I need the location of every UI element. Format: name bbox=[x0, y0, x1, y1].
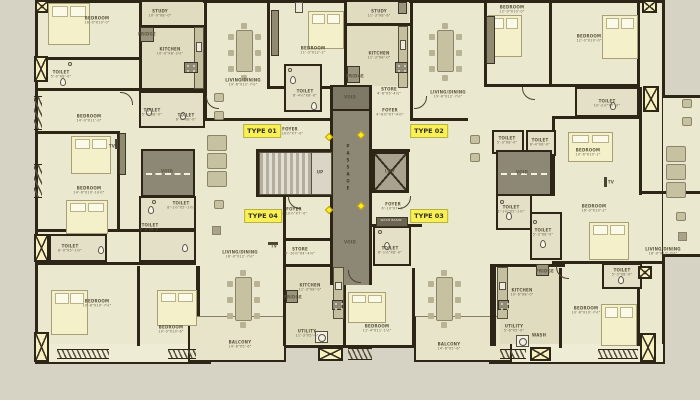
bed bbox=[308, 11, 344, 49]
toilet-fixture bbox=[148, 206, 154, 214]
wall bbox=[267, 0, 270, 89]
sofa bbox=[666, 182, 686, 198]
wash-basin bbox=[68, 62, 72, 66]
room-label: FOYER4'-6½"X7'-4½" bbox=[376, 107, 404, 116]
room-label: TOILET6'-1½"X8'-0" bbox=[378, 245, 402, 254]
duct-shaft bbox=[34, 56, 48, 82]
toilet-fixture bbox=[98, 246, 104, 254]
passage-corridor bbox=[330, 85, 372, 285]
room-label: KITCHEN10'-6"X8'-0" bbox=[511, 287, 534, 296]
duct-shaft bbox=[643, 86, 659, 112]
room-label: VOID bbox=[161, 169, 173, 174]
stove bbox=[498, 300, 509, 310]
toilet-fixture bbox=[311, 102, 317, 110]
side-table bbox=[212, 226, 221, 235]
toilet-fixture bbox=[540, 240, 546, 248]
room-label: STUDY11'-3"X8'-6" bbox=[368, 8, 391, 17]
room-label: VOID bbox=[344, 95, 356, 100]
balcony-right bbox=[414, 316, 512, 362]
stove bbox=[395, 62, 408, 73]
room-label: LIFT bbox=[385, 169, 395, 174]
bed bbox=[602, 15, 638, 59]
wall bbox=[139, 0, 142, 91]
room-label: KITCHEN11'-3"X8'-0" bbox=[299, 282, 322, 291]
toilet-fixture bbox=[618, 276, 624, 284]
wardrobe bbox=[486, 16, 495, 64]
room-label: TV bbox=[271, 244, 277, 249]
room-label: TOILET5'-3"X8'-0" bbox=[612, 267, 633, 276]
staircase bbox=[259, 152, 313, 195]
stove bbox=[184, 62, 198, 73]
wall bbox=[412, 268, 415, 348]
room-label: BEDROOM16'-0"X10'-2" bbox=[581, 203, 606, 212]
duct-shaft bbox=[530, 347, 551, 361]
room-label: VOID bbox=[344, 240, 356, 245]
room-label: TOILET5'-3"X8'-0" bbox=[140, 222, 161, 231]
room-label: BEDROOM16'-0"X10'-0" bbox=[84, 15, 109, 24]
room-label: TOILET5'-0"X8'-0" bbox=[51, 69, 72, 78]
room-label: TOILET6'-4½"X8'-0" bbox=[293, 88, 317, 97]
room-label: FOYER6'-10"X7'-0" bbox=[382, 201, 405, 210]
room-label: WASH bbox=[532, 333, 546, 338]
wall bbox=[35, 57, 141, 60]
room-label: LIVING/DINING16'-0"X12'-7½" bbox=[645, 246, 681, 255]
wall bbox=[410, 0, 413, 121]
sofa bbox=[207, 135, 227, 151]
room-label: LIVING/DINING19'-6"X12'-7½" bbox=[430, 89, 466, 98]
room-label: FOYER6'-10½"X7'-0" bbox=[281, 206, 307, 215]
bed bbox=[157, 290, 197, 326]
duct-shaft bbox=[34, 332, 49, 362]
room-label: BEDROOM12'-0"X10'-0" bbox=[499, 4, 524, 13]
toilet-fixture bbox=[290, 76, 296, 84]
room-label: FRIDGE bbox=[138, 32, 156, 37]
window-hatch bbox=[34, 164, 42, 198]
kitchen-sink bbox=[335, 282, 342, 290]
washing-machine bbox=[516, 335, 529, 347]
room-label: TOILET8'-1½"X5'-1½" bbox=[497, 204, 525, 213]
toilet-fixture bbox=[60, 78, 66, 86]
kitchen-sink bbox=[499, 282, 506, 290]
bed bbox=[348, 292, 386, 323]
dining-chairs bbox=[228, 34, 234, 40]
kitchen-sink bbox=[400, 40, 406, 50]
window-hatch bbox=[34, 96, 42, 130]
wall bbox=[490, 266, 496, 346]
sofa bbox=[666, 164, 686, 180]
room-label: STUDY10'-0"X8'-0" bbox=[149, 8, 172, 17]
armchair bbox=[682, 99, 692, 108]
room-label: BEDROOM10'-6"X10'-7½" bbox=[572, 305, 601, 314]
room-label: BALCONY14'-6"X5'-6" bbox=[229, 339, 252, 348]
room-label: TOILET10'-2½"X5'-0" bbox=[594, 98, 620, 107]
railing-hatch bbox=[500, 349, 526, 359]
room-label: TOILET6'-4"X8'-0" bbox=[530, 137, 551, 146]
type-label-02: TYPE 02 bbox=[410, 124, 448, 138]
wall bbox=[137, 266, 140, 346]
kitchen-counter bbox=[398, 26, 408, 88]
room-label: TOILET5'-3"X8'-0" bbox=[533, 227, 554, 236]
floor-plan-canvas: BEDROOM16'-0"X10'-0"TOILET5'-0"X8'-0"STU… bbox=[0, 0, 700, 400]
wardrobe bbox=[271, 10, 279, 56]
room-label: TV bbox=[109, 144, 115, 149]
room-label: FRIDGE bbox=[284, 295, 302, 300]
sofa bbox=[207, 171, 227, 187]
dining-table bbox=[436, 277, 453, 321]
kitchen-counter bbox=[333, 267, 344, 319]
room-label: TOILET5'-3"X8'-0" bbox=[142, 107, 163, 116]
room-label: BEDROOM11'-4"X11'-1½" bbox=[363, 323, 392, 332]
room-label: TOILET8'-1½"X5'-1½" bbox=[167, 200, 195, 209]
duct-shaft bbox=[35, 0, 49, 13]
wardrobe bbox=[119, 133, 126, 175]
kitchen-counter bbox=[194, 27, 204, 89]
room-label: BEDROOM11'-3"X12'-2" bbox=[300, 45, 325, 54]
room-label: TOILET8'-0"X5'-1½" bbox=[58, 243, 82, 252]
sofa bbox=[666, 146, 686, 162]
room-label: WASH BASIN bbox=[380, 219, 401, 223]
room-label: UP bbox=[317, 170, 324, 175]
room-label: UTILITY11'-3"X5'-6" bbox=[296, 328, 319, 337]
room-label: STORE6'-10½"X4'-4½" bbox=[285, 246, 315, 255]
room-label: BEDROOM14'-0"X11'-0" bbox=[76, 113, 101, 122]
room-label: BALCONY14'-6"X5'-6" bbox=[438, 341, 461, 350]
type-label-01: TYPE 01 bbox=[243, 124, 281, 138]
railing-hatch bbox=[598, 349, 638, 359]
room-label: LIVING/DINING16'-0"X12'-7½" bbox=[222, 249, 258, 258]
room-label: BEDROOM12'-0"X10'-0" bbox=[576, 33, 601, 42]
room-label: KITCHEN10'-0"X8'-2½" bbox=[157, 46, 183, 55]
room-label: TOILET6'-4"X8'-0" bbox=[176, 112, 197, 121]
bed bbox=[51, 290, 88, 335]
room-label: STORE4'-6"X5'-4½" bbox=[377, 86, 401, 95]
dining-table bbox=[437, 30, 454, 72]
wall bbox=[283, 196, 286, 346]
wall bbox=[35, 262, 196, 265]
tv-unit bbox=[115, 139, 118, 149]
side-table bbox=[678, 232, 687, 241]
room-label: TV bbox=[608, 180, 614, 185]
armchair bbox=[676, 212, 686, 221]
wash-basin bbox=[533, 220, 537, 224]
type-label-04: TYPE 04 bbox=[244, 209, 282, 223]
wall bbox=[35, 131, 119, 134]
armchair bbox=[682, 117, 692, 126]
armchair bbox=[470, 153, 480, 162]
duct-shaft bbox=[638, 266, 652, 279]
room-label: VOID bbox=[516, 170, 528, 175]
sofa bbox=[207, 153, 227, 169]
kitchen-sink bbox=[196, 42, 202, 52]
wash-basin bbox=[152, 200, 156, 204]
tv-unit bbox=[604, 177, 607, 187]
railing-hatch bbox=[348, 348, 372, 360]
room-label: FRIDGE bbox=[536, 269, 554, 274]
room-label: BEDROOM10'-6"X10'-7½" bbox=[83, 298, 112, 307]
type-label-03: TYPE 03 bbox=[410, 209, 448, 223]
service-box bbox=[398, 2, 407, 14]
room-label: BEDROOM14'-6"X10'-10½" bbox=[73, 185, 104, 194]
duct-shaft bbox=[318, 347, 343, 361]
dining-chairs bbox=[429, 34, 435, 40]
wall bbox=[559, 268, 562, 348]
dining-table bbox=[235, 277, 252, 321]
dining-chairs bbox=[227, 281, 233, 287]
room-label: FRIDGE bbox=[346, 74, 364, 79]
room-label: TOILET5'-3"X8'-0" bbox=[497, 135, 518, 144]
duct-shaft bbox=[34, 234, 49, 262]
room-label: LIVING/DINING19'-6"X12'-7½" bbox=[225, 77, 261, 86]
duct-shaft bbox=[640, 333, 656, 362]
wash-basin bbox=[288, 68, 292, 72]
wash-basin bbox=[378, 230, 382, 234]
room-label: BEDROOM10'-6"X10'-2" bbox=[575, 147, 600, 156]
room-label: PASSAGE bbox=[346, 144, 351, 193]
room-label: KITCHEN11'-3"X8'-0" bbox=[368, 50, 391, 59]
wall bbox=[283, 238, 331, 241]
duct-shaft bbox=[642, 0, 657, 13]
bed bbox=[71, 136, 111, 174]
wall bbox=[549, 0, 552, 87]
room-label: BEDROOM10'-0"X10'-6" bbox=[158, 324, 183, 333]
kitchen-counter bbox=[497, 267, 508, 319]
wall bbox=[639, 87, 642, 195]
dining-table bbox=[236, 30, 253, 72]
bed bbox=[66, 200, 108, 234]
railing-hatch bbox=[168, 349, 196, 359]
bed bbox=[589, 222, 629, 260]
room-label: UTILITY5'-6"X5'-0" bbox=[504, 323, 525, 332]
railing-hatch bbox=[57, 349, 109, 359]
armchair bbox=[214, 200, 224, 209]
service-box bbox=[295, 2, 303, 13]
armchair bbox=[470, 135, 480, 144]
armchair bbox=[214, 111, 224, 120]
wall bbox=[411, 118, 468, 121]
dining-chairs bbox=[428, 281, 434, 287]
stove bbox=[332, 300, 343, 310]
bed bbox=[601, 304, 637, 346]
toilet-fixture bbox=[182, 244, 188, 252]
